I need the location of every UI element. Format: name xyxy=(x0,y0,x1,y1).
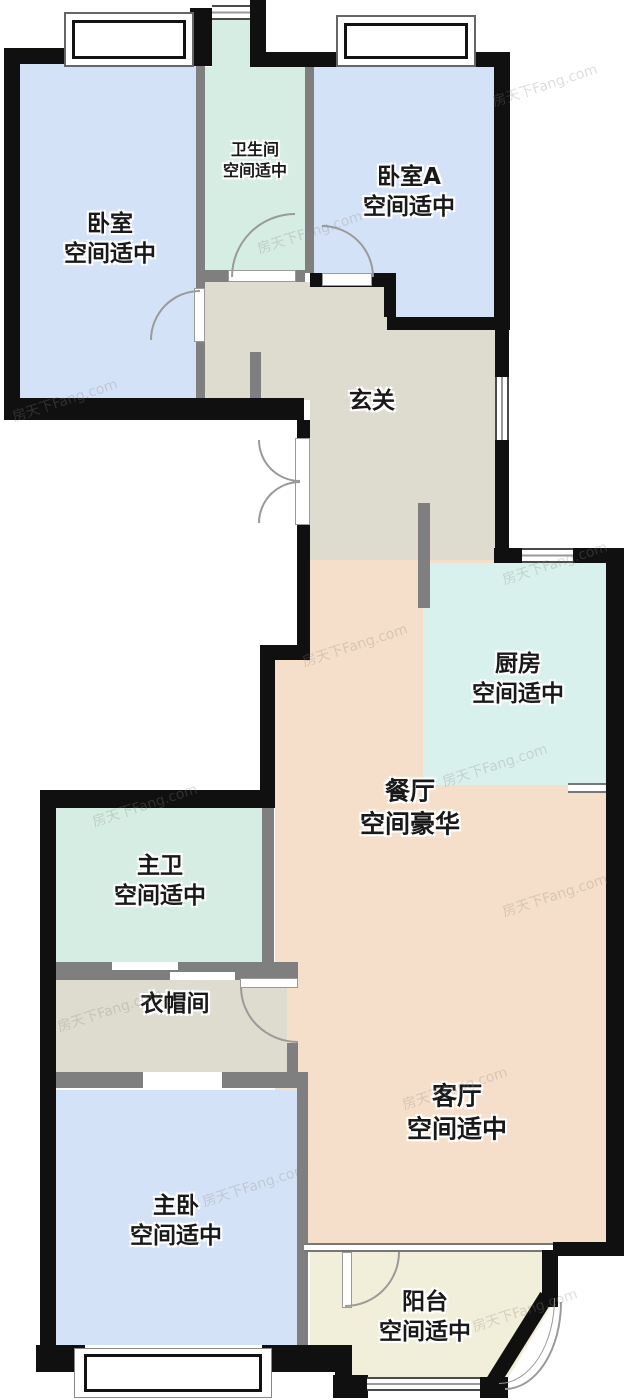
room-label-kitchen: 厨房 空间适中 xyxy=(472,650,564,710)
exterior-wall xyxy=(250,52,340,67)
room-label-bedroom: 卧室 空间适中 xyxy=(64,210,156,270)
room-size: 空间适中 xyxy=(223,161,287,182)
room-size: 空间适中 xyxy=(130,1222,222,1252)
kitchen-half-wall xyxy=(568,783,606,793)
interior-wall xyxy=(250,352,261,400)
room-name: 卫生间 xyxy=(223,140,287,161)
exterior-wall xyxy=(297,420,310,440)
entrance-door-arc xyxy=(258,440,300,482)
room-size: 空间适中 xyxy=(472,680,564,710)
exterior-wall xyxy=(495,440,509,552)
interior-wall xyxy=(297,1072,308,1347)
room-name: 卧室 xyxy=(64,210,156,240)
room-name: 餐厅 xyxy=(360,776,460,809)
balcony-wall xyxy=(304,1243,553,1252)
room-label-hallway: 玄关 xyxy=(349,387,395,417)
bay-window xyxy=(72,20,186,59)
room-name: 主卧 xyxy=(130,1192,222,1222)
bay-window xyxy=(84,1354,262,1392)
exterior-wall xyxy=(4,48,70,64)
floor-plan: 卧室 空间适中 卫生间 空间适中 卧室A 空间适中 玄关 厨房 空间适中 餐厅 … xyxy=(0,0,624,1400)
exterior-wall xyxy=(40,790,275,808)
room-size: 空间适中 xyxy=(64,240,156,270)
exterior-wall xyxy=(260,645,310,660)
exterior-wall xyxy=(260,660,275,808)
exterior-wall xyxy=(4,398,304,420)
interior-wall xyxy=(418,503,430,608)
room-size: 空间豪华 xyxy=(360,808,460,841)
entrance-door-arc xyxy=(258,481,300,523)
window xyxy=(495,377,509,440)
room-name: 阳台 xyxy=(379,1288,471,1318)
interior-wall xyxy=(196,340,205,400)
interior-wall xyxy=(196,64,205,290)
room-label-bedroom-a: 卧室A 空间适中 xyxy=(363,163,455,223)
room-hallway xyxy=(310,400,495,560)
room-name: 卧室A xyxy=(363,163,455,193)
room-size: 空间适中 xyxy=(114,882,206,912)
window xyxy=(367,1377,480,1391)
exterior-wall xyxy=(495,330,509,377)
room-name: 客厅 xyxy=(407,1081,507,1114)
room-size: 空间适中 xyxy=(379,1318,471,1348)
room-name: 厨房 xyxy=(472,650,564,680)
room-label-cloakroom: 衣帽间 xyxy=(141,990,210,1020)
exterior-wall xyxy=(494,52,510,330)
bay-window xyxy=(344,23,468,59)
exterior-wall xyxy=(297,523,310,648)
exterior-wall xyxy=(333,1375,368,1398)
exterior-wall xyxy=(606,548,624,1256)
window xyxy=(522,548,573,563)
sliding-door xyxy=(112,962,178,970)
room-label-balcony: 阳台 空间适中 xyxy=(379,1288,471,1348)
exterior-wall xyxy=(553,1242,624,1256)
interior-wall xyxy=(262,808,274,962)
room-label-bathroom: 卫生间 空间适中 xyxy=(223,140,287,182)
room-label-master-bath: 主卫 空间适中 xyxy=(114,852,206,912)
interior-wall xyxy=(305,67,314,273)
room-label-master-bedroom: 主卧 空间适中 xyxy=(130,1192,222,1252)
room-bathroom-nook xyxy=(212,19,250,67)
exterior-wall xyxy=(40,790,56,1360)
wall-opening xyxy=(143,1072,222,1088)
curved-window xyxy=(499,1298,555,1384)
room-size: 空间适中 xyxy=(363,193,455,223)
room-bedroom-a xyxy=(396,273,494,317)
exterior-wall xyxy=(494,548,522,563)
window xyxy=(212,5,250,20)
room-name: 衣帽间 xyxy=(141,990,210,1020)
room-name: 主卫 xyxy=(114,852,206,882)
room-size: 空间适中 xyxy=(407,1113,507,1146)
sliding-door xyxy=(170,972,235,980)
exterior-wall xyxy=(4,48,20,420)
exterior-wall xyxy=(384,273,396,317)
room-name: 玄关 xyxy=(349,387,395,417)
room-label-dining: 餐厅 空间豪华 xyxy=(360,776,460,841)
room-label-living: 客厅 空间适中 xyxy=(407,1081,507,1146)
exterior-wall xyxy=(387,317,510,330)
interior-wall xyxy=(287,1043,298,1072)
exterior-wall xyxy=(250,0,266,53)
